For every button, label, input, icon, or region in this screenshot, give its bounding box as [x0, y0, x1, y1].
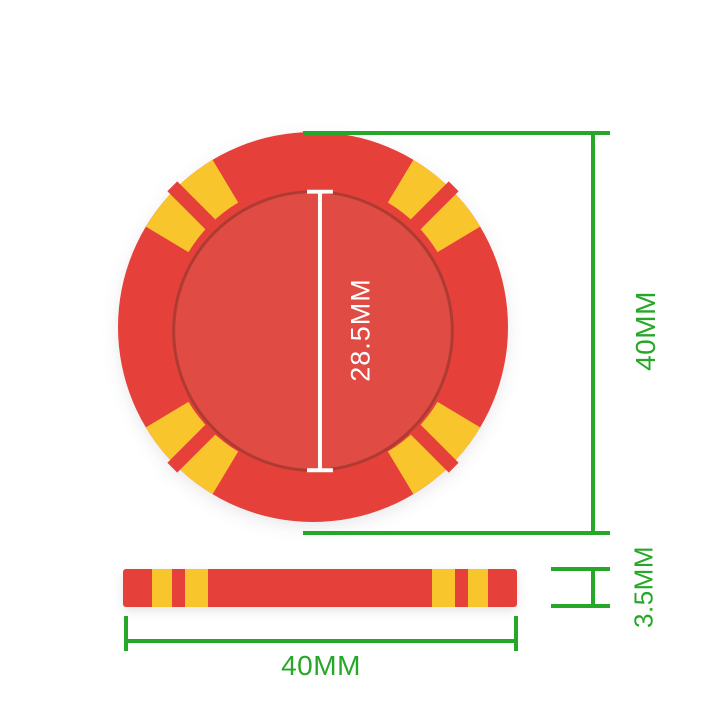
side-stripe-red-center: [208, 569, 432, 607]
chip-top-view: [118, 132, 508, 522]
chip-side-view: [123, 569, 517, 607]
thickness-dim-connector: [591, 567, 595, 608]
side-stripe-red: [123, 569, 152, 607]
thickness-dim-line-bottom: [551, 604, 610, 608]
side-stripe-yellow: [152, 569, 172, 607]
inner-diameter-label: 28.5MM: [346, 278, 377, 382]
outer-diameter-label: 40MM: [630, 291, 662, 371]
side-stripe-yellow: [468, 569, 488, 607]
side-stripe-red: [455, 569, 468, 607]
right-dim-extension-bottom: [303, 531, 610, 535]
bottom-dim-line: [125, 639, 518, 643]
outer-width-label: 40MM: [281, 650, 361, 682]
side-stripe-red: [488, 569, 517, 607]
bottom-dim-tick-right: [514, 616, 518, 651]
chip-inner-circle: [174, 192, 453, 471]
side-stripe-yellow: [432, 569, 455, 607]
thickness-dim-line-top: [551, 567, 610, 571]
side-stripe-red: [172, 569, 185, 607]
product-dimension-diagram: 28.5MM 40MM 3.5MM 40MM: [0, 0, 720, 720]
right-dim-extension-top: [303, 131, 610, 135]
right-dim-vertical-line: [591, 131, 595, 535]
side-stripe-yellow: [185, 569, 208, 607]
bottom-dim-tick-left: [124, 616, 128, 651]
thickness-label: 3.5MM: [629, 546, 660, 628]
